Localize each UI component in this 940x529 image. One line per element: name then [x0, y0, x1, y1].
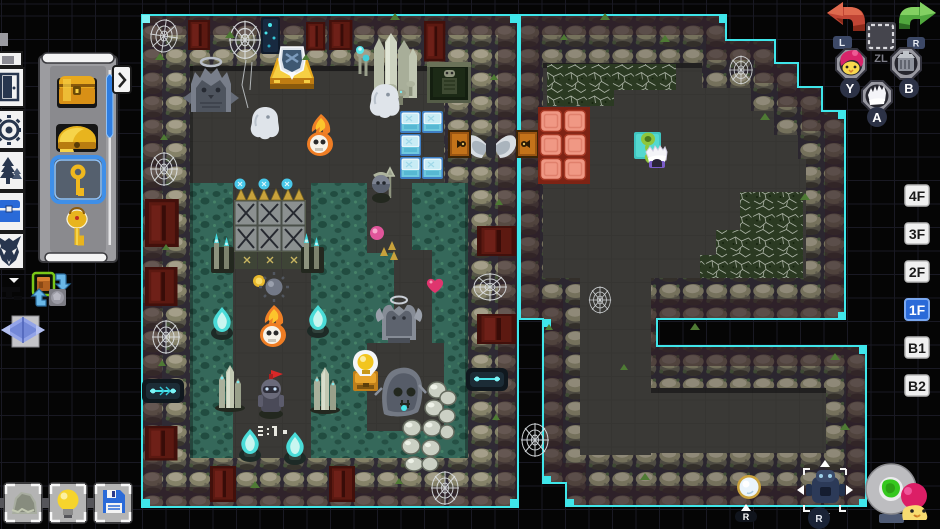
svg-text:3F: 3F [909, 226, 926, 242]
svg-text:4F: 4F [909, 188, 926, 204]
svg-text:2F: 2F [909, 264, 926, 280]
svg-text:A: A [872, 110, 882, 125]
svg-text:L: L [839, 38, 845, 49]
svg-text:B1: B1 [908, 340, 926, 356]
svg-text:B2: B2 [908, 378, 926, 394]
svg-text:R: R [913, 39, 920, 49]
svg-text:1F: 1F [909, 302, 926, 318]
svg-text:ZL: ZL [874, 53, 888, 65]
svg-text:Y: Y [846, 81, 855, 96]
svg-text:B: B [904, 81, 913, 96]
